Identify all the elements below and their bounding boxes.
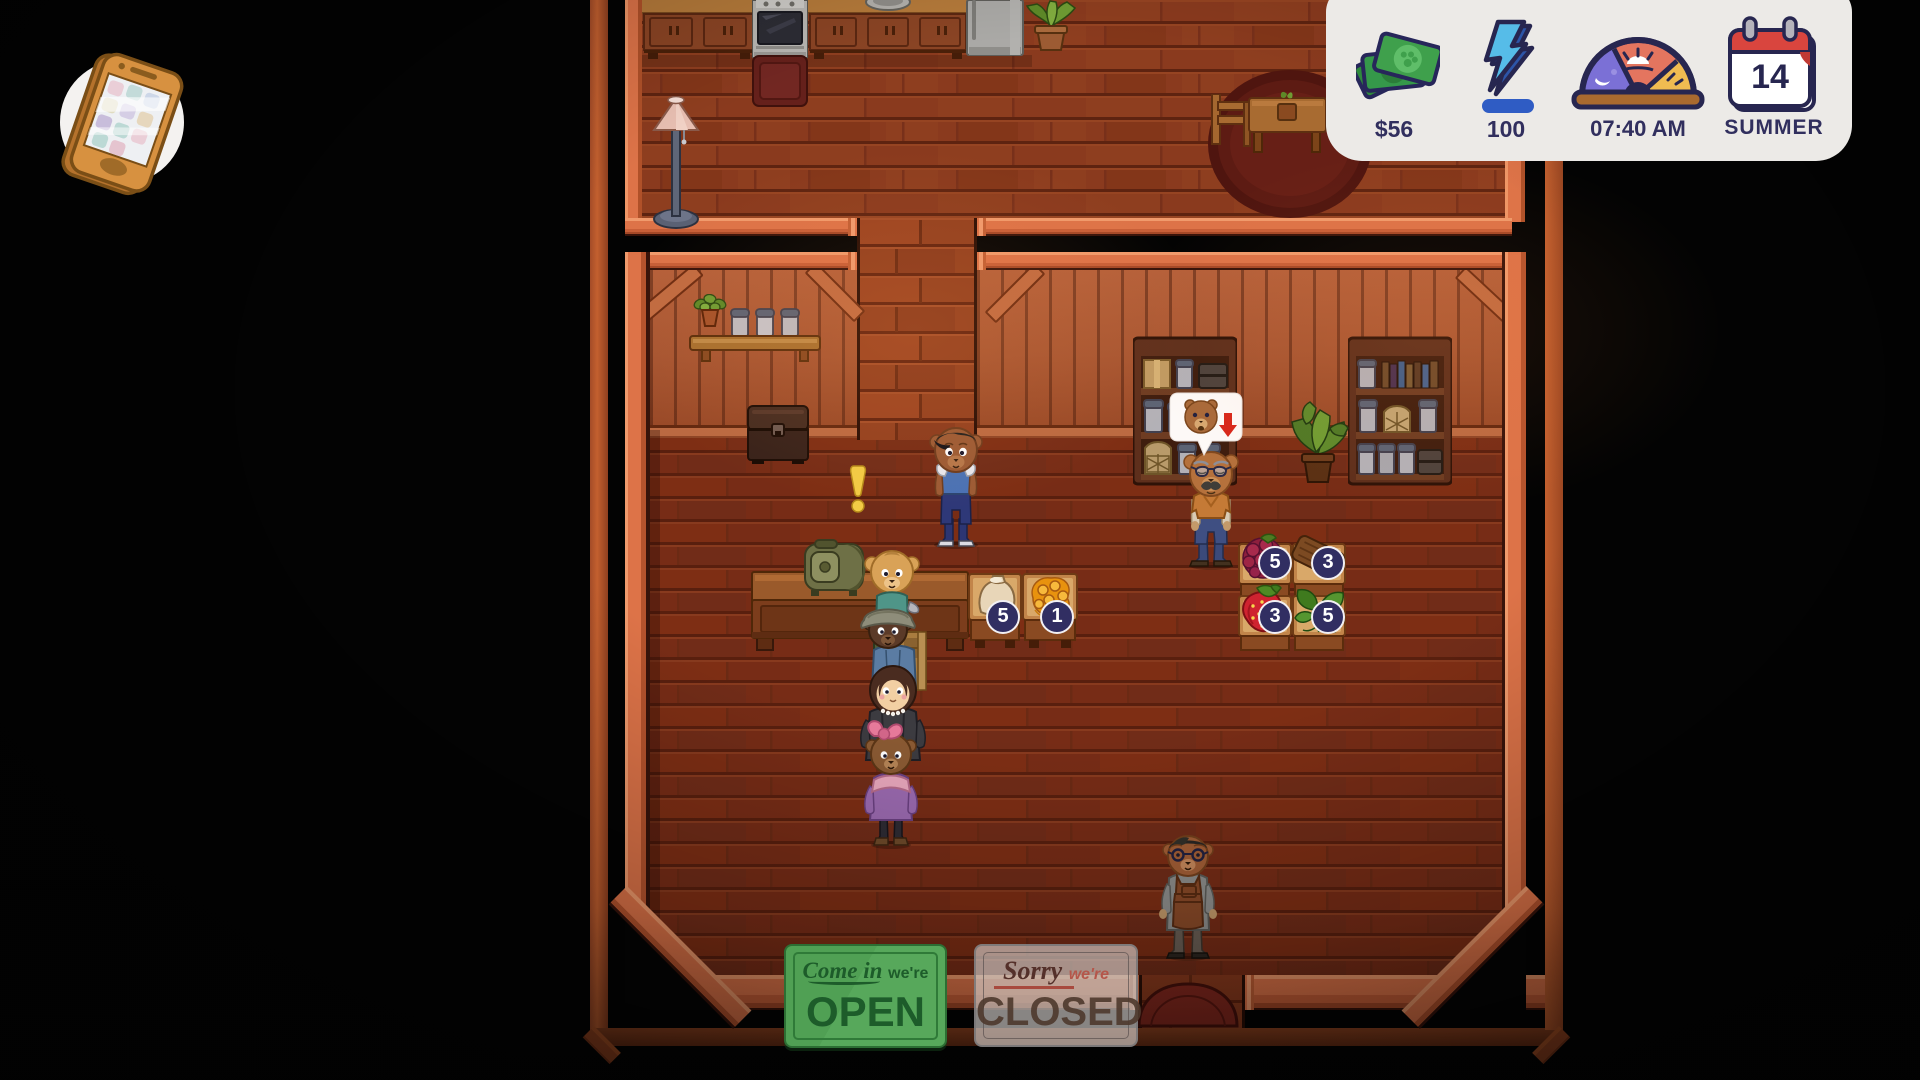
svg-text:14: 14: [1751, 58, 1789, 96]
